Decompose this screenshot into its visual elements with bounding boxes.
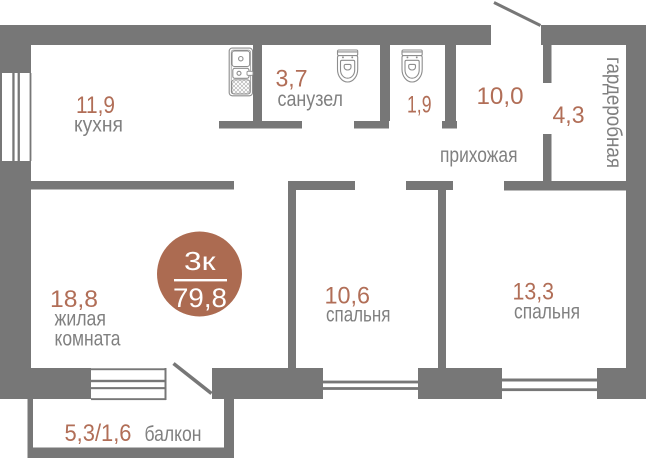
svg-text:комната: комната	[55, 328, 121, 351]
svg-text:4,3: 4,3	[553, 102, 585, 129]
svg-text:3к: 3к	[184, 246, 216, 276]
svg-text:прихожая: прихожая	[440, 144, 518, 167]
svg-text:спальня: спальня	[514, 301, 580, 324]
svg-text:1,9: 1,9	[407, 92, 432, 119]
svg-text:гардеробная: гардеробная	[602, 57, 625, 168]
svg-text:10,0: 10,0	[477, 83, 524, 110]
svg-text:балкон: балкон	[145, 423, 202, 446]
svg-text:санузел: санузел	[278, 88, 344, 111]
svg-text:79,8: 79,8	[173, 283, 227, 313]
svg-text:5,3/1,6: 5,3/1,6	[65, 420, 132, 447]
svg-text:спальня: спальня	[326, 304, 391, 327]
svg-text:кухня: кухня	[74, 114, 123, 137]
